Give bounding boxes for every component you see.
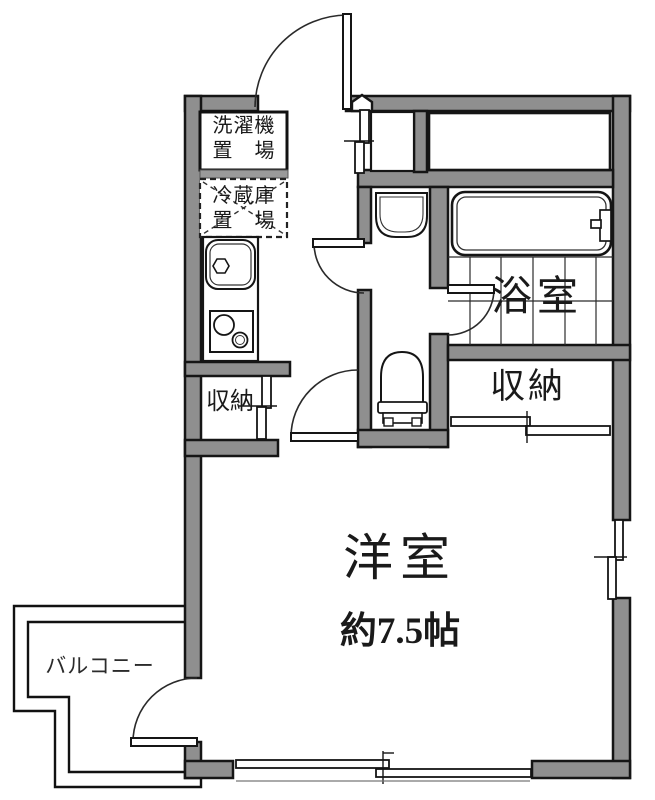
balcony-railing — [14, 606, 201, 787]
main-room-door — [291, 370, 358, 441]
fridge-line1: 冷蔵庫 — [213, 185, 276, 207]
wall — [185, 96, 201, 678]
sliding-panel — [451, 417, 530, 426]
closet-left-label: 収納 — [198, 388, 262, 417]
basin-outline — [376, 193, 427, 237]
washing-machine-label: 洗濯機置 場 — [200, 114, 288, 164]
balcony-label: バルコニー — [30, 654, 170, 679]
wall — [358, 290, 371, 447]
balcony-door — [131, 678, 197, 746]
window-right-wall — [594, 520, 627, 599]
sliding-panel — [526, 426, 610, 435]
window-sash — [376, 769, 531, 777]
wall — [358, 187, 371, 243]
sliding-panel — [355, 142, 364, 173]
wall — [358, 430, 448, 447]
bathtub-faucet-icon — [591, 220, 601, 228]
entrance-door — [255, 14, 351, 109]
bathtub-outline — [452, 192, 611, 255]
wall — [613, 96, 630, 520]
sink-drain-icon — [213, 259, 229, 273]
wall — [185, 440, 278, 456]
window-bottom-wall — [236, 751, 531, 784]
toilet — [378, 352, 427, 426]
wall — [430, 187, 448, 288]
door-swing-arc — [255, 15, 347, 107]
bathroom-label: 浴室 — [472, 272, 602, 321]
main-room-label: 洋室 — [300, 528, 500, 588]
door-swing-arc — [291, 370, 358, 437]
room-size-label: 約7.5帖 — [300, 610, 500, 654]
upper-storage-compartment — [429, 113, 610, 170]
washer-line1: 洗濯機 — [213, 115, 276, 137]
washer-line2: 置 場 — [213, 140, 276, 162]
wall — [185, 761, 233, 778]
refrigerator-label: 冷蔵庫置 場 — [200, 184, 288, 234]
door-leaf — [343, 14, 351, 109]
balcony-inner-line — [28, 622, 185, 772]
closet-right-label: 収納 — [473, 366, 583, 408]
toilet-foot — [384, 418, 393, 426]
sliding-panel — [360, 110, 369, 143]
toilet-seat — [378, 402, 427, 413]
stove-burner — [233, 333, 248, 348]
toilet-bowl — [381, 352, 423, 405]
door-leaf — [291, 433, 358, 441]
stove-burner — [214, 315, 234, 335]
floor-plan: 洗濯機置 場 冷蔵庫置 場 収納 浴室 収納 洋室 約7.5帖 バルコニー — [0, 0, 655, 800]
stove — [210, 311, 253, 352]
closet-right-sliding-door — [451, 411, 610, 443]
wall — [346, 96, 630, 111]
wall — [532, 761, 630, 778]
window-sash — [608, 557, 616, 599]
wall — [414, 111, 427, 172]
bathtub — [452, 192, 611, 255]
fridge-line2: 置 場 — [213, 210, 276, 232]
wall — [358, 170, 613, 187]
door-swing-arc — [314, 243, 364, 293]
sliding-panel — [262, 376, 271, 408]
wall — [613, 598, 630, 778]
counter-divider — [200, 170, 288, 178]
window-sash — [236, 760, 389, 768]
wash-basin — [376, 193, 427, 237]
entrance-side-closet — [371, 112, 414, 171]
window-sash — [615, 520, 623, 560]
door-swing-arc — [133, 678, 197, 742]
kitchen-sink — [206, 240, 255, 289]
toilet-foot — [412, 418, 421, 426]
hall-sliding-door — [344, 110, 374, 173]
wall — [185, 362, 290, 376]
washroom-door — [313, 239, 364, 293]
door-leaf — [313, 239, 364, 247]
door-leaf — [131, 738, 197, 746]
wall — [448, 345, 630, 360]
